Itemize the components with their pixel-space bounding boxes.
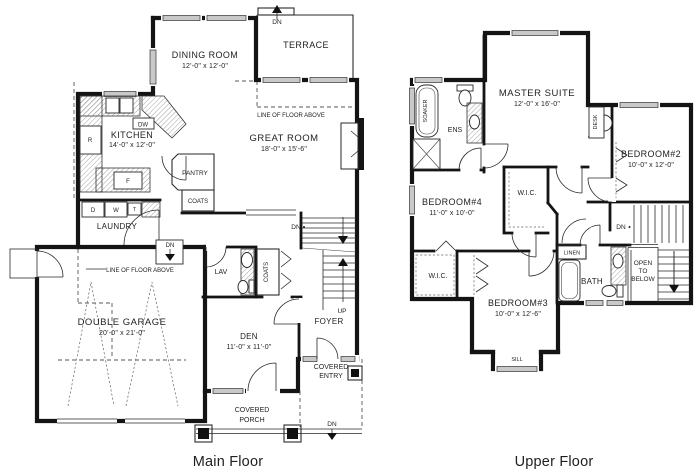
floor-plan-drawing: DINING ROOM 12'-0" x 12'-0" TERRACE DN K…: [0, 0, 700, 476]
lav-sink: [242, 253, 253, 268]
bedroom2-dims: 10'-0" x 12'-0": [628, 162, 674, 169]
line-of-floor-above-label-1: LINE OF FLOOR ABOVE: [257, 113, 325, 119]
stairs-dn-label: DN: [291, 224, 301, 231]
upper-stairs-dn-label: DN: [616, 224, 626, 231]
soaker-label: SOAKER: [423, 100, 429, 123]
kitchen-dims: 14'-0" x 12'-0": [109, 142, 155, 149]
lav-toilet: [238, 281, 248, 294]
terrace-steps: [272, 5, 282, 20]
bedroom2-label: BEDROOM#2: [621, 149, 681, 159]
fireplace: [341, 118, 364, 170]
covered-porch-label-2: PORCH: [239, 417, 264, 424]
sill-label: SILL: [511, 357, 522, 363]
upper-staircase: [628, 205, 690, 303]
linen-door: [562, 219, 586, 243]
wic-bedroom3-label: W.I.C.: [428, 273, 447, 280]
dining-west-window: [150, 50, 156, 84]
open-to-below-label-3: BELOW: [631, 276, 655, 283]
great-room-window-1: [263, 78, 300, 83]
porch-post-2: [287, 428, 298, 439]
bath-toilet: [602, 286, 616, 297]
dryer-label: D: [91, 208, 96, 214]
kitchen-label: KITCHEN: [111, 130, 153, 140]
great-room-label: GREAT ROOM: [249, 133, 318, 144]
bath-window-2: [607, 301, 623, 306]
main-floor-plan: DINING ROOM 12'-0" x 12'-0" TERRACE DN K…: [10, 5, 364, 470]
bedroom3-closet-bifold: [476, 258, 488, 292]
dining-north-window-2: [207, 16, 246, 21]
great-room-dims: 18'-0" x 15'-6": [261, 146, 307, 153]
coats-foyer-bifold: [281, 251, 291, 289]
main-staircase: [302, 217, 356, 310]
lav-fixtures: [238, 249, 279, 295]
terrace-label: TERRACE: [283, 40, 329, 50]
fridge-label: R: [88, 138, 93, 144]
open-to-below-label-1: OPEN: [634, 260, 653, 267]
main-floor-caption: Main Floor: [193, 454, 264, 470]
pantry-label: PANTRY: [182, 170, 208, 177]
garage-steps-dn-label: DN: [166, 243, 175, 249]
great-room-window-2: [310, 78, 347, 83]
coats-hall-label: COATS: [188, 199, 208, 205]
lav-toilet-tank: [249, 280, 254, 293]
dining-room-dims: 12'-0" x 12'-0": [182, 63, 228, 70]
ens-window: [415, 78, 442, 83]
lav-label: LAV: [215, 269, 228, 276]
desk-label: DESK: [593, 114, 599, 129]
linen-label: LINEN: [564, 251, 580, 257]
wic-door: [512, 233, 536, 257]
den-window: [213, 389, 243, 394]
ens-label: ENS: [448, 127, 463, 134]
porch-post-1: [198, 428, 209, 439]
master-door: [556, 167, 582, 193]
stairs-up-arrow-icon: [338, 258, 348, 266]
bedroom2-window: [620, 103, 658, 108]
dishwasher-label: DW: [138, 123, 148, 129]
upper-floor-caption: Upper Floor: [515, 454, 594, 470]
bath-sink: [613, 254, 623, 268]
porch-dn-arrow-icon: [327, 433, 337, 440]
entry-post: [351, 369, 359, 377]
garage-stoop: [10, 249, 37, 278]
coats-foyer-label: COATS: [264, 262, 270, 282]
laundry-label: LAUNDRY: [97, 222, 138, 231]
open-to-below-label-2: TO: [639, 268, 648, 275]
master-window: [512, 31, 558, 36]
covered-entry-label-2: ENTRY: [319, 373, 343, 380]
upper-floor-labels: MASTER SUITE 12'-0" x 16'-0" SOAKER ENS …: [422, 88, 681, 470]
porch-and-entry: [195, 359, 362, 442]
bedroom3-door: [529, 251, 554, 276]
foyer-sidelight-2: [341, 357, 355, 362]
floor-plan-page: DINING ROOM 12'-0" x 12'-0" TERRACE DN K…: [0, 0, 700, 476]
main-doors: [10, 156, 338, 391]
dining-north-window-1: [163, 16, 200, 21]
bath-window-1: [586, 301, 603, 306]
master-west-door: [484, 144, 508, 168]
upper-floor-plan: MASTER SUITE 12'-0" x 16'-0" SOAKER ENS …: [408, 29, 691, 470]
wic-hall-label: W.I.C.: [517, 190, 536, 197]
soaker-window: [410, 88, 415, 124]
washer-label: W: [113, 208, 119, 214]
bedroom3-label: BEDROOM#3: [488, 298, 548, 308]
terrace-dn-arrow-icon: [272, 5, 282, 13]
kitchen-sink-1: [106, 98, 119, 113]
master-suite-label: MASTER SUITE: [499, 88, 575, 99]
master-suite-dims: 12'-0" x 16'-0": [514, 101, 560, 108]
foyer-label: FOYER: [314, 317, 343, 326]
bedroom3-bay-window: [497, 367, 537, 372]
stairs-up-label: UP: [337, 308, 346, 315]
terrace-dn-label: DN: [272, 19, 282, 26]
kitchen-sink-2: [120, 98, 133, 113]
den-label: DEN: [240, 332, 258, 341]
bedroom4-window: [410, 186, 415, 214]
main-wall-openings: [33, 14, 359, 425]
line-of-floor-above-label-2: LINE OF FLOOR ABOVE: [106, 268, 174, 274]
bedroom4-door-chevron: [436, 241, 456, 251]
ens-sink: [470, 115, 480, 129]
garage-label: DOUBLE GARAGE: [78, 317, 167, 328]
dining-room-label: DINING ROOM: [172, 50, 238, 60]
bath-door: [580, 225, 600, 245]
den-dims: 11'-0" x 11'-0": [226, 344, 271, 351]
covered-porch-label-1: COVERED: [235, 407, 270, 414]
porch-dn-label: DN: [327, 421, 337, 428]
bedroom4-dims: 11'-0" x 10'-0": [429, 210, 475, 217]
ens-door: [459, 148, 481, 170]
bedroom3-dims: 10'-0" x 12'-6": [495, 311, 541, 318]
bath-toilet-tank: [617, 285, 623, 297]
bath-label: BATH: [581, 277, 603, 286]
bedroom4-label: BEDROOM#4: [422, 197, 482, 207]
freezer-label: F: [126, 179, 130, 185]
den-porch-door: [248, 363, 276, 391]
garage-dims: 20'-0" x 21'-0": [99, 330, 145, 337]
covered-entry-label-1: COVERED: [314, 364, 349, 371]
garage-markers: [68, 269, 178, 406]
foyer-sidelight-1: [303, 357, 317, 362]
